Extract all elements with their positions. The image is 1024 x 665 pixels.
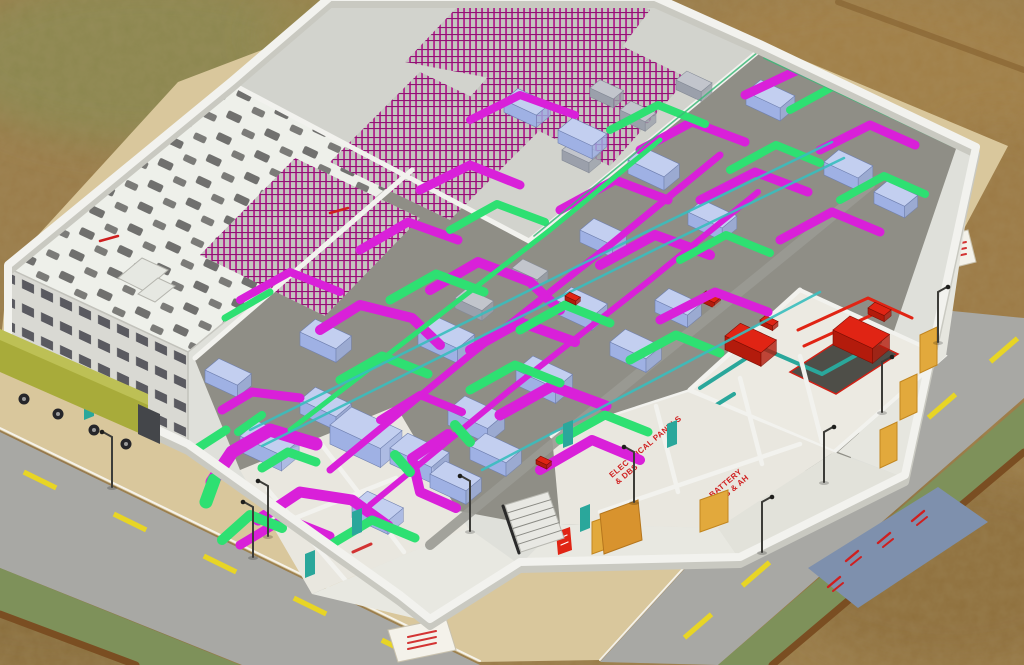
lamp-head [890,355,895,360]
bim-render-viewport: ELECTRICAL PANELS& DBSBATTERYUPS & AH [0,0,1024,665]
door [305,550,315,578]
door [580,504,590,532]
lamp-head [241,500,246,505]
lamp-head [946,285,951,290]
extract-duct [206,480,214,502]
roller-shutter-door [880,422,897,468]
door [563,420,573,448]
door [352,508,362,536]
roller-shutter-door [920,327,937,373]
lamp-head [770,495,775,500]
lamp-head [458,474,463,479]
lamp-head [832,425,837,430]
bim-3d-scene: ELECTRICAL PANELS& DBSBATTERYUPS & AH [0,0,1024,665]
roller-shutter-door [900,374,917,420]
door [667,420,677,448]
lamp-head [100,430,105,435]
lamp-head [622,445,627,450]
lamp-head [256,479,261,484]
